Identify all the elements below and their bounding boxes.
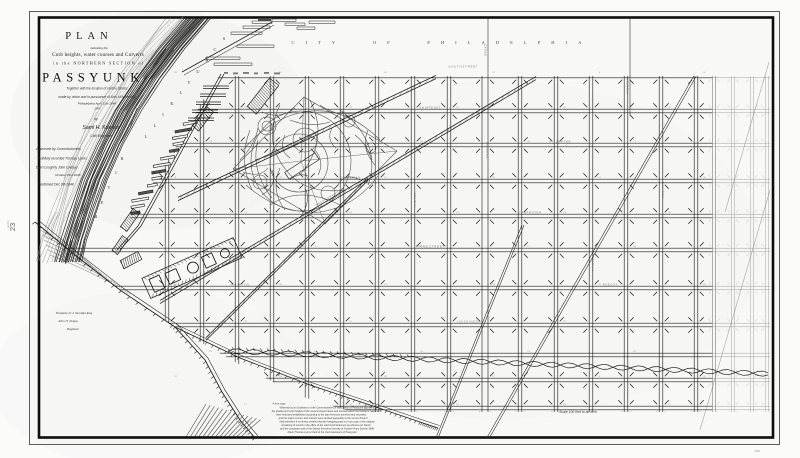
svg-text:S O U T H S T R E E T: S O U T H S T R E E T <box>448 65 478 69</box>
svg-text:A true copy: A true copy <box>273 402 287 406</box>
svg-text:Saml H. Kneass: Saml H. Kneass <box>82 125 120 131</box>
svg-text:Registrar: Registrar <box>67 327 80 331</box>
svg-text:PASSYUNK: PASSYUNK <box>42 71 144 85</box>
svg-text:Philadelphia April 13th 1848: Philadelphia April 13th 1848 <box>78 102 117 106</box>
svg-text:D I C K I N S O N: D I C K I N S O N <box>460 320 481 324</box>
svg-text:John H. Frape: John H. Frape <box>58 319 78 323</box>
svg-text:Confirmed Dec 9th 1848: Confirmed Dec 9th 1848 <box>38 183 74 187</box>
svg-text:October 31st 1848: October 31st 1848 <box>55 173 81 177</box>
svg-text:indicating the: indicating the <box>90 46 108 50</box>
svg-text:PLAN: PLAN <box>65 31 112 42</box>
svg-text:Property of J. Dundas Esq: Property of J. Dundas Esq <box>56 311 92 315</box>
svg-text:1848: 1848 <box>94 108 100 111</box>
svg-text:B R O A D: B R O A D <box>484 44 487 55</box>
svg-text:S H I P P E N S T: S H I P P E N S T <box>419 106 440 110</box>
svg-text:Civil Engineer: Civil Engineer <box>90 134 112 138</box>
svg-text:by: by <box>94 117 98 121</box>
svg-text:R: R <box>95 214 98 219</box>
svg-text:F I T Z W A T E R: F I T Z W A T E R <box>550 140 571 144</box>
svg-text:P R I M E S T R E E T: P R I M E S T R E E T <box>416 245 445 249</box>
svg-text:in the NORTHERN SECTION of: in the NORTHERN SECTION of <box>53 61 144 66</box>
svg-text:Commrs Consent: Commrs Consent <box>236 421 253 424</box>
svg-text:Attest Thomas Lyons Clerk of: Attest Thomas Lyons Clerk of the Commiss… <box>287 431 357 434</box>
svg-text:E: E <box>101 200 104 205</box>
svg-text:Scale 100 feet to an Inch: Scale 100 feet to an Inch <box>559 410 597 414</box>
svg-text:Approved by Commissioners: Approved by Commissioners <box>35 147 81 151</box>
svg-text:W H A R T O N: W H A R T O N <box>231 283 249 287</box>
svg-text:C: C <box>214 47 217 52</box>
svg-text:Together with the location of: Together with the location of certain St… <box>66 87 128 91</box>
svg-text:T H I R T E E N T H: T H I R T E E N T H <box>592 249 595 271</box>
svg-text:pa 23 s: pa 23 s <box>7 219 10 228</box>
svg-text:made by virtue and in pursuanc: made by virtue and in pursuance of Acts … <box>58 95 136 99</box>
svg-text:CITY OF PHILADELPHIA: CITY OF PHILADELPHIA <box>292 40 593 45</box>
svg-text:J U N I P E R: J U N I P E R <box>414 192 417 207</box>
svg-text:R E E D S T: R E E D S T <box>603 283 618 287</box>
svg-text:P A S S Y U N K: P A S S Y U N K <box>626 76 629 94</box>
svg-text:L: L <box>154 123 157 128</box>
svg-text:Dan'l Loughrty John Lindsay: Dan'l Loughrty John Lindsay <box>36 166 78 170</box>
svg-text:L: L <box>145 134 148 139</box>
svg-text:B R O A D S T: B R O A D S T <box>486 142 489 158</box>
svg-text:Truthfully recorded Thomas Ly: Truthfully recorded Thomas Lyons <box>37 157 87 161</box>
svg-text:4 83: 4 83 <box>754 449 760 453</box>
svg-text:R: R <box>121 156 124 161</box>
svg-text:L: L <box>180 90 183 95</box>
svg-text:T W E L F T H: T W E L F T H <box>662 182 665 198</box>
svg-text:C A R P E N T E R: C A R P E N T E R <box>519 211 541 215</box>
svg-text:Curb heights, water courses an: Curb heights, water courses and Culverts <box>52 52 144 58</box>
